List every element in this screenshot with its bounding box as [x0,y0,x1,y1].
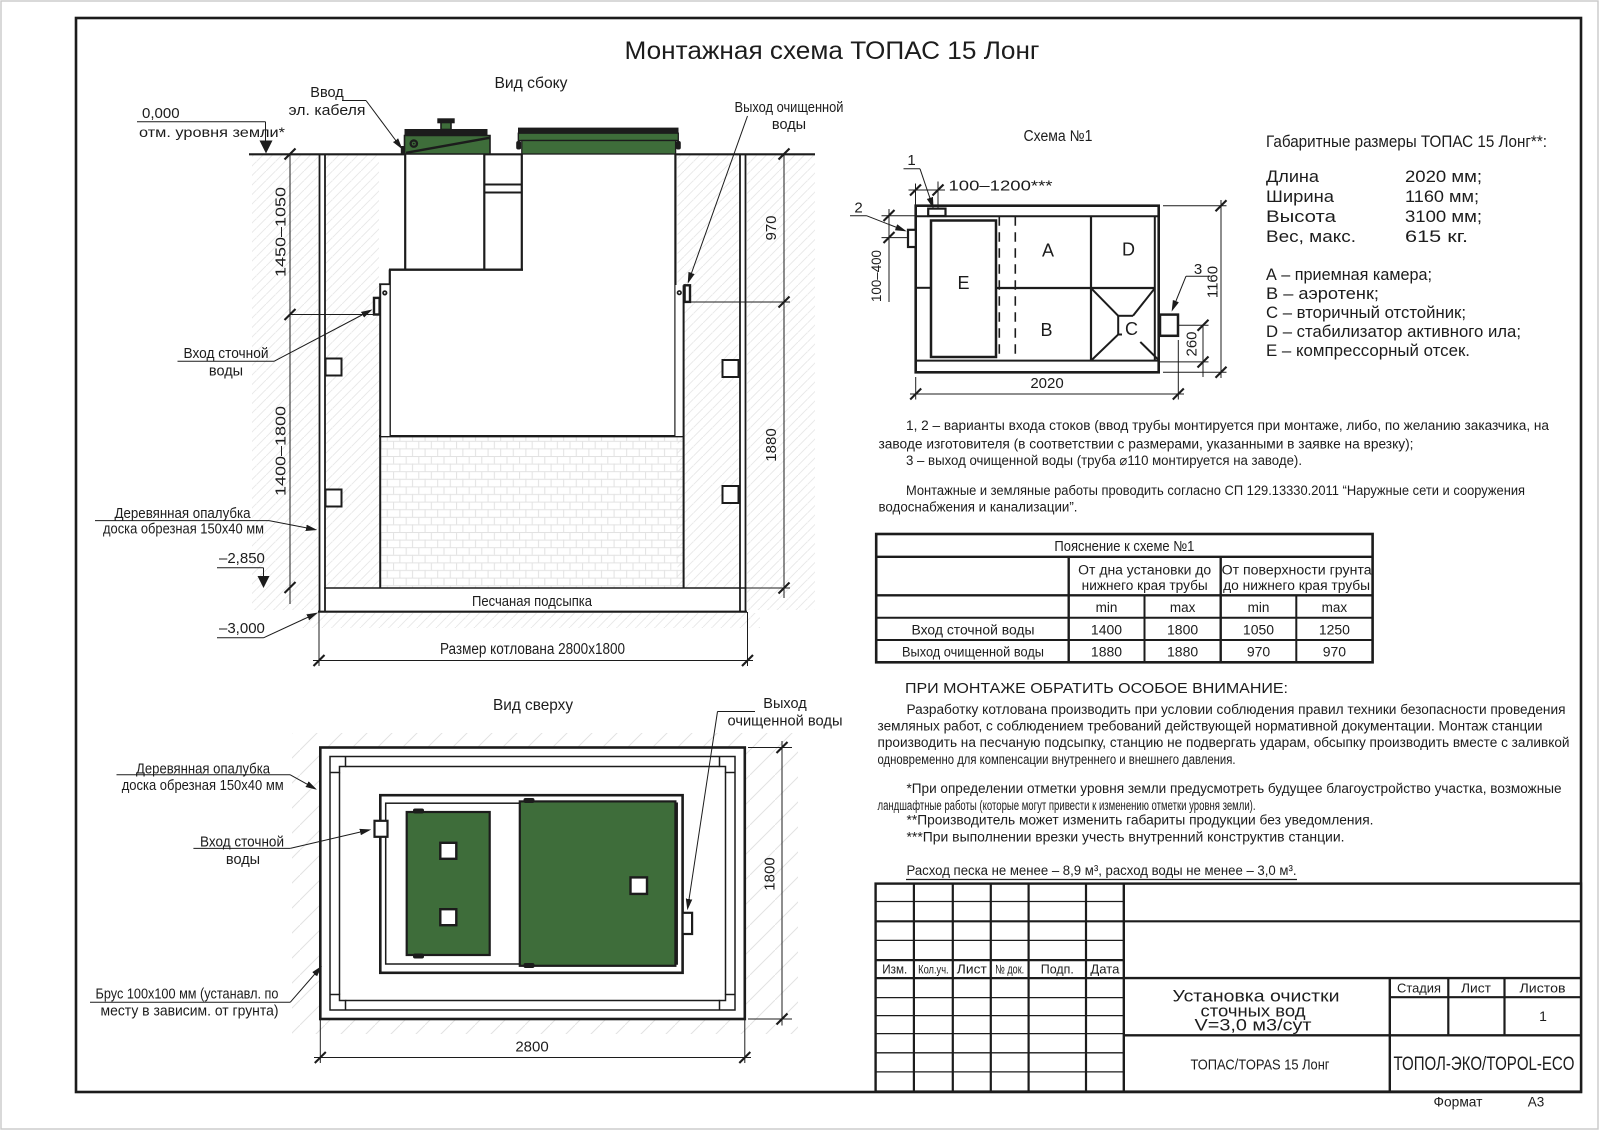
svg-text:Стадия: Стадия [1397,981,1441,996]
svg-text:1880: 1880 [1167,644,1198,660]
svg-text:1800: 1800 [762,857,779,890]
svg-text:Лист: Лист [957,963,987,977]
svg-text:Высота: Высота [1266,208,1337,226]
svg-text:1400: 1400 [1091,622,1122,638]
svg-text:615 кг.: 615 кг. [1405,228,1468,246]
svg-text:0,000: 0,000 [142,105,180,122]
svg-text:1050: 1050 [1243,622,1274,638]
svg-text:970: 970 [1247,644,1271,660]
svg-text:Вход сточной воды: Вход сточной воды [912,622,1035,638]
svg-text:одновременно для компенсации в: одновременно для компенсации внутреннего… [878,752,1236,768]
svg-text:А – приемная камера;: А – приемная камера; [1266,266,1432,284]
svg-text:970: 970 [1323,644,1347,660]
svg-text:Ввод: Ввод [310,85,344,101]
svg-text:Листов: Листов [1520,981,1566,996]
svg-text:От дна установки до: От дна установки до [1078,563,1211,578]
svg-text:C – вторичный отстойник;: C – вторичный отстойник; [1266,304,1466,322]
svg-text:1400–1800: 1400–1800 [273,406,290,496]
svg-text:min: min [1248,600,1270,615]
svg-text:2020 мм;: 2020 мм; [1405,168,1482,186]
svg-text:V=3,0 м3/сут: V=3,0 м3/сут [1195,1017,1313,1035]
svg-text:3 – выход очищенной воды (труб: 3 – выход очищенной воды (труба ⌀110 мон… [906,453,1302,469]
svg-text:1250: 1250 [1319,622,1350,638]
svg-text:ПРИ МОНТАЖЕ ОБРАТИТЬ ОСОБОЕ ВН: ПРИ МОНТАЖЕ ОБРАТИТЬ ОСОБОЕ ВНИМАНИЕ: [905,680,1288,697]
svg-text:Пояснение к схеме №1: Пояснение к схеме №1 [1054,539,1194,555]
svg-text:1160 мм;: 1160 мм; [1405,188,1479,206]
svg-text:1800: 1800 [1167,622,1198,638]
svg-text:Вход сточной: Вход сточной [184,346,269,362]
svg-text:100–1200***: 100–1200*** [949,178,1053,195]
svg-text:2: 2 [854,200,862,217]
svg-text:min: min [1096,600,1118,615]
svg-text:Расход песка не менее – 8,9 м³: Расход песка не менее – 8,9 м³, расход в… [907,863,1297,879]
svg-text:заводе изготовителя (в соответ: заводе изготовителя (в соответствии с ра… [879,437,1414,453]
svg-text:1: 1 [907,152,915,169]
svg-text:Песчаная подсыпка: Песчаная подсыпка [472,594,593,610]
svg-text:От поверхности грунта: От поверхности грунта [1222,563,1373,578]
svg-text:Выход очищенной: Выход очищенной [735,100,844,116]
svg-text:1450–1050: 1450–1050 [273,187,290,277]
svg-text:3: 3 [1194,261,1202,278]
svg-text:производить на песчаную подсып: производить на песчаную подсыпку, станци… [878,735,1570,751]
svg-text:100–400: 100–400 [868,250,884,302]
svg-text:Кол.уч.: Кол.уч. [918,965,949,977]
svg-text:земляных работ, с соблюдением: земляных работ, с соблюдением требований… [878,719,1543,735]
svg-text:до нижнего края трубы: до нижнего края трубы [1223,578,1370,593]
svg-text:max: max [1170,600,1196,615]
svg-text:Брус 100х100 мм (устанавл. по: Брус 100х100 мм (устанавл. по [96,987,279,1003]
svg-text:Размер котлована 2800х1800: Размер котлована 2800х1800 [440,641,625,658]
svg-text:max: max [1322,600,1348,615]
svg-text:№ док.: № док. [995,963,1024,977]
svg-text:Схема №1: Схема №1 [1024,128,1093,145]
svg-text:Изм.: Изм. [882,963,907,977]
svg-text:3100 мм;: 3100 мм; [1405,208,1482,226]
svg-text:Дата: Дата [1090,963,1119,977]
svg-text:Лист: Лист [1461,981,1491,996]
svg-text:Длина: Длина [1266,168,1320,186]
svg-text:D – стабилизатор активного ила: D – стабилизатор активного ила; [1266,323,1521,341]
svg-text:Деревянная опалубка: Деревянная опалубка [115,506,252,522]
svg-text:*При определении отметки уровн: *При определении отметки уровня земли пр… [907,781,1562,797]
svg-text:А3: А3 [1528,1095,1545,1110]
svg-text:1880: 1880 [1091,644,1122,660]
svg-text:месту в зависим. от грунта): месту в зависим. от грунта) [101,1004,279,1020]
svg-text:B: B [1040,320,1052,340]
svg-text:воды: воды [772,117,806,133]
svg-text:воды: воды [226,852,260,868]
svg-text:Подп.: Подп. [1041,963,1074,977]
svg-text:доска обрезная 150х40 мм: доска обрезная 150х40 мм [103,522,264,538]
svg-text:водоснабжения и канализации”.: водоснабжения и канализации”. [879,500,1078,516]
svg-text:C: C [1125,319,1138,339]
svg-text:2020: 2020 [1030,375,1063,392]
svg-text:D: D [1122,240,1135,260]
svg-text:Монтажные и земляные работы пр: Монтажные и земляные работы проводить со… [906,483,1525,499]
svg-text:**Производитель может изменить: **Производитель может изменить габариты … [907,813,1374,829]
svg-text:отм. уровня земли*: отм. уровня земли* [139,124,286,140]
svg-text:A: A [1042,241,1054,261]
svg-text:E: E [957,273,969,293]
svg-text:–3,000: –3,000 [219,620,265,637]
svg-text:970: 970 [763,215,780,240]
svg-text:ТОПАС/TOPAS 15 Лонг: ТОПАС/TOPAS 15 Лонг [1191,1058,1330,1074]
svg-text:B – аэротенк;: B – аэротенк; [1266,285,1379,303]
svg-text:Габаритные размеры ТОПАС 15 Ло: Габаритные размеры ТОПАС 15 Лонг**: [1266,132,1547,151]
svg-text:воды: воды [209,364,243,380]
svg-text:1880: 1880 [763,428,780,461]
svg-text:ТОПОЛ-ЭКО/TOPOL-ECO: ТОПОЛ-ЭКО/TOPOL-ECO [1394,1054,1575,1075]
svg-text:доска обрезная 150х40 мм: доска обрезная 150х40 мм [122,778,284,794]
svg-text:1: 1 [1539,1008,1547,1024]
svg-text:очищенной воды: очищенной воды [728,714,843,730]
svg-text:–2,850: –2,850 [219,550,265,567]
svg-text:1160: 1160 [1205,266,1222,298]
svg-text:260: 260 [1184,331,1201,356]
svg-text:2800: 2800 [515,1039,548,1056]
svg-text:Выход: Выход [763,696,807,712]
svg-text:1, 2 – варианты входа стоков: 1, 2 – варианты входа стоков (ввод трубы… [906,418,1549,434]
svg-text:Формат: Формат [1434,1095,1483,1110]
svg-text:E – компрессорный отсек.: E – компрессорный отсек. [1266,342,1470,360]
svg-text:Монтажная схема ТОПАС 15 Лонг: Монтажная схема ТОПАС 15 Лонг [625,37,1040,65]
svg-text:Выход очищенной воды: Выход очищенной воды [902,644,1044,660]
svg-text:Вид сбоку: Вид сбоку [495,75,568,92]
svg-text:***При выполнении врезки учест: ***При выполнении врезки учесть внутренн… [907,830,1345,846]
svg-text:Вид сверху: Вид сверху [493,697,573,714]
svg-text:нижнего края трубы: нижнего края трубы [1082,578,1208,593]
svg-text:Ширина: Ширина [1266,188,1335,206]
svg-text:Разработку котлована производи: Разработку котлована производить при усл… [907,702,1566,718]
svg-text:эл. кабеля: эл. кабеля [289,103,366,119]
svg-text:Вес, макс.: Вес, макс. [1266,228,1356,246]
